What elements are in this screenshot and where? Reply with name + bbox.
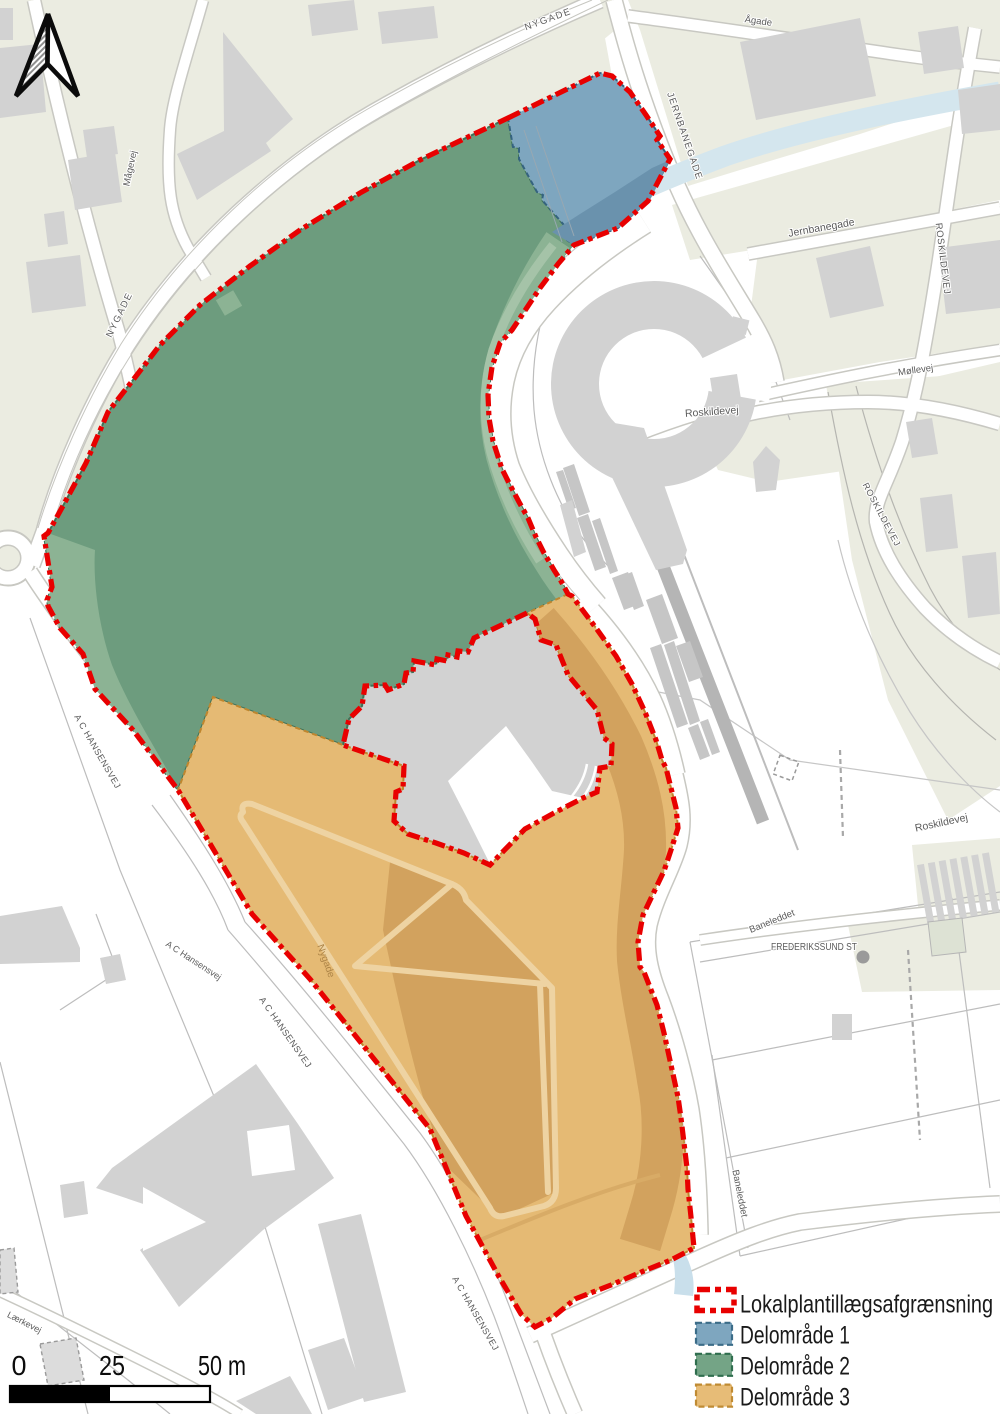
svg-text:Delområde 3: Delområde 3 xyxy=(740,1384,850,1412)
svg-text:Delområde 2: Delområde 2 xyxy=(740,1353,850,1381)
svg-text:50 m: 50 m xyxy=(198,1350,246,1381)
svg-text:25: 25 xyxy=(99,1350,125,1381)
svg-text:Delområde 1: Delområde 1 xyxy=(740,1322,850,1350)
svg-text:0: 0 xyxy=(12,1350,27,1381)
svg-text:FREDERIKSSUND ST: FREDERIKSSUND ST xyxy=(771,942,857,953)
svg-text:Lokalplantillægsafgrænsning: Lokalplantillægsafgrænsning xyxy=(740,1291,993,1319)
